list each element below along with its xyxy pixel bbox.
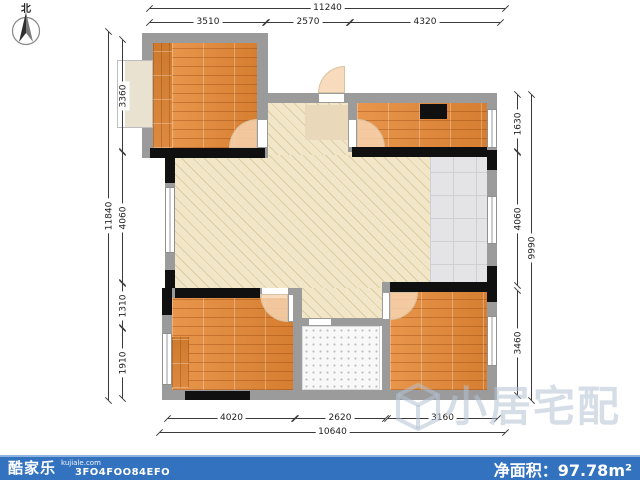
bedroom-bottomright-window [487, 316, 497, 366]
dim-label: 4060 [514, 204, 525, 233]
wall-segment-black [175, 288, 260, 298]
flue-shaft [420, 104, 447, 119]
dim-label: 4020 [217, 413, 246, 424]
brand-info: kujiale.com 3FO4FOO84EFO [61, 460, 170, 478]
dim-top-overall: 11240 [150, 8, 505, 9]
dim-label: 2620 [326, 413, 355, 424]
dim-bottom-seg2: 2620 [295, 418, 385, 419]
door-leaf [348, 119, 357, 148]
brand-logo: 酷家乐 [8, 461, 56, 476]
footer-bar: 酷家乐 kujiale.com 3FO4FOO84EFO 净面积： 97.78 … [0, 455, 640, 480]
entry-door-leaf [318, 93, 345, 103]
dim-label: 9990 [528, 233, 539, 262]
living-window [165, 187, 175, 253]
dim-bottom-seg3: 3160 [388, 418, 497, 419]
wall-segment-black [487, 282, 497, 302]
living-room-floor [175, 155, 430, 288]
dim-left-seg2: 4060 [122, 152, 123, 283]
dim-label: 2570 [294, 17, 323, 28]
net-area-unit: m² [608, 461, 632, 480]
dim-left-seg1: 3360 [122, 40, 123, 152]
entry-door-arc [318, 66, 345, 93]
compass-icon: 北 [8, 2, 44, 48]
dim-label: 3510 [194, 17, 223, 28]
dim-right-seg3: 3460 [517, 291, 518, 395]
dim-label: 1630 [514, 109, 525, 138]
dim-left-seg4: 1910 [122, 328, 123, 398]
wall-segment-black [487, 150, 497, 170]
north-compass: 北 [8, 2, 44, 52]
dim-top-seg3: 4320 [350, 22, 500, 23]
brand-domain: kujiale.com [61, 460, 170, 467]
dim-label: 3460 [514, 329, 525, 358]
door-leaf [382, 292, 390, 320]
bathroom-floor [302, 326, 380, 390]
dim-right-seg2: 4060 [517, 152, 518, 285]
net-area-value: 97.78 [558, 461, 609, 480]
wall-segment [268, 93, 497, 103]
dim-label: 1310 [119, 291, 130, 320]
wall-segment-black [162, 288, 172, 315]
dim-label: 4060 [119, 203, 130, 232]
dim-label: 3360 [119, 82, 130, 111]
dim-top-seg1: 3510 [150, 22, 266, 23]
bedroom-bottomleft-window [162, 333, 172, 385]
bedroom-topleft-bay-floor [153, 43, 172, 148]
dining-area-floor [430, 152, 487, 288]
wall-segment-black [382, 282, 497, 292]
bedroom-bottomleft-bay-floor [172, 337, 189, 388]
floor-plan [0, 0, 640, 455]
dim-right-overall: 9990 [531, 95, 532, 400]
dim-left-overall: 11840 [108, 32, 109, 400]
dining-window [487, 196, 497, 244]
entry-mat [305, 105, 352, 140]
dim-bottom-seg1: 4020 [168, 418, 295, 419]
dim-label: 11840 [105, 199, 116, 234]
dim-label: 3160 [428, 413, 457, 424]
door-leaf [257, 119, 268, 148]
bathroom-door-leaf [308, 318, 332, 326]
wall-segment [142, 33, 268, 43]
net-area: 净面积： 97.78 m² [494, 457, 632, 480]
plan-code: 3FO4FOO84EFO [75, 468, 170, 478]
wall-segment-black [165, 152, 175, 183]
wall-segment-black [352, 147, 487, 157]
dim-left-seg3: 1310 [122, 283, 123, 328]
dim-label: 4320 [411, 17, 440, 28]
dim-top-seg2: 2570 [266, 22, 350, 23]
wall-segment [293, 293, 302, 390]
dim-bottom-overall: 10640 [160, 432, 505, 433]
floor-plan-page: 11240 3510 2570 4320 11840 3360 4060 131… [0, 0, 640, 480]
wall-segment-black [185, 391, 250, 400]
kitchen-window [487, 109, 497, 148]
dim-right-seg1: 1630 [517, 95, 518, 152]
hallway-floor [298, 288, 382, 318]
dim-label: 11240 [310, 3, 345, 14]
net-area-label: 净面积： [494, 457, 558, 480]
dim-label: 10640 [315, 427, 350, 438]
dim-label: 1910 [119, 349, 130, 378]
